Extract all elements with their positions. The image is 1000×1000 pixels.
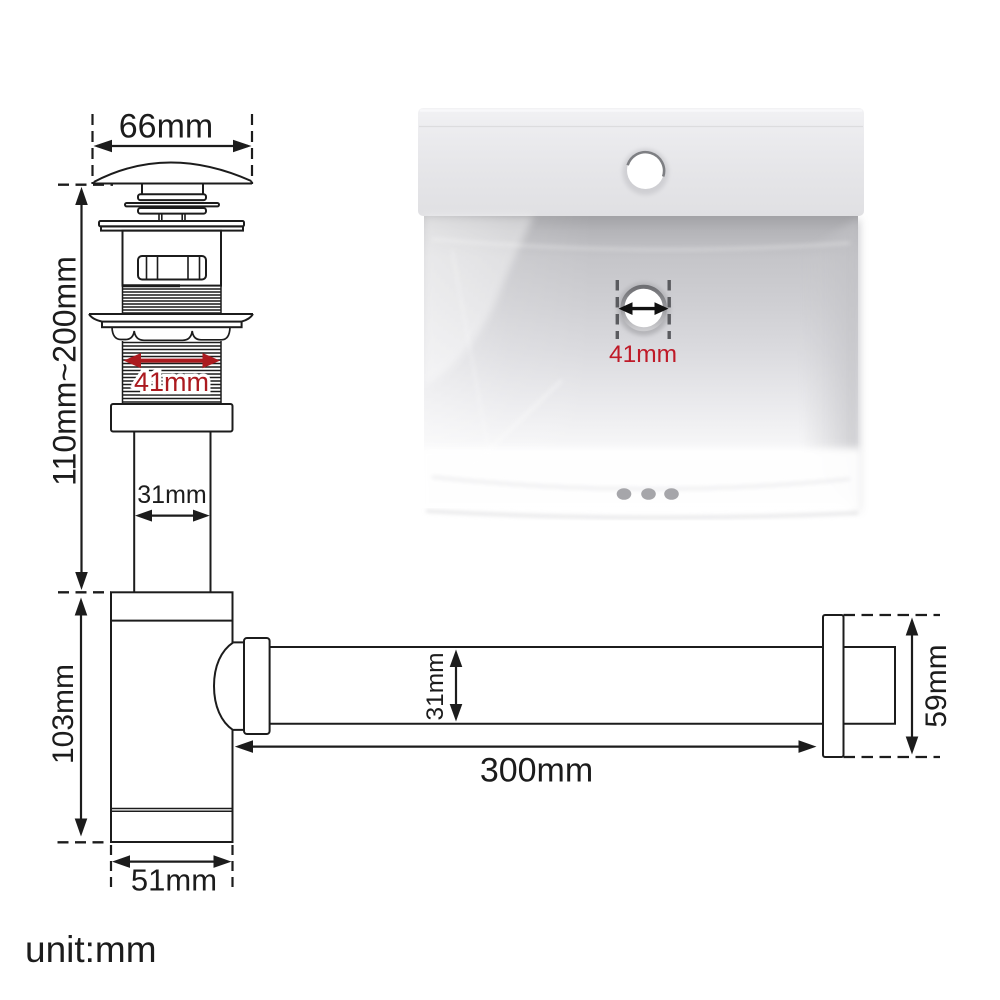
svg-text:31mm: 31mm [422,652,449,720]
svg-text:59mm: 59mm [920,644,953,727]
svg-text:31mm: 31mm [137,481,206,509]
svg-text:110mm~200mm: 110mm~200mm [46,256,82,486]
svg-text:unit:mm: unit:mm [25,929,157,970]
svg-text:51mm: 51mm [131,863,217,898]
svg-text:300mm: 300mm [480,752,593,790]
svg-text:103mm: 103mm [47,664,80,764]
svg-text:41mm: 41mm [134,367,209,397]
svg-text:66mm: 66mm [119,108,213,146]
svg-text:41mm: 41mm [609,341,677,368]
